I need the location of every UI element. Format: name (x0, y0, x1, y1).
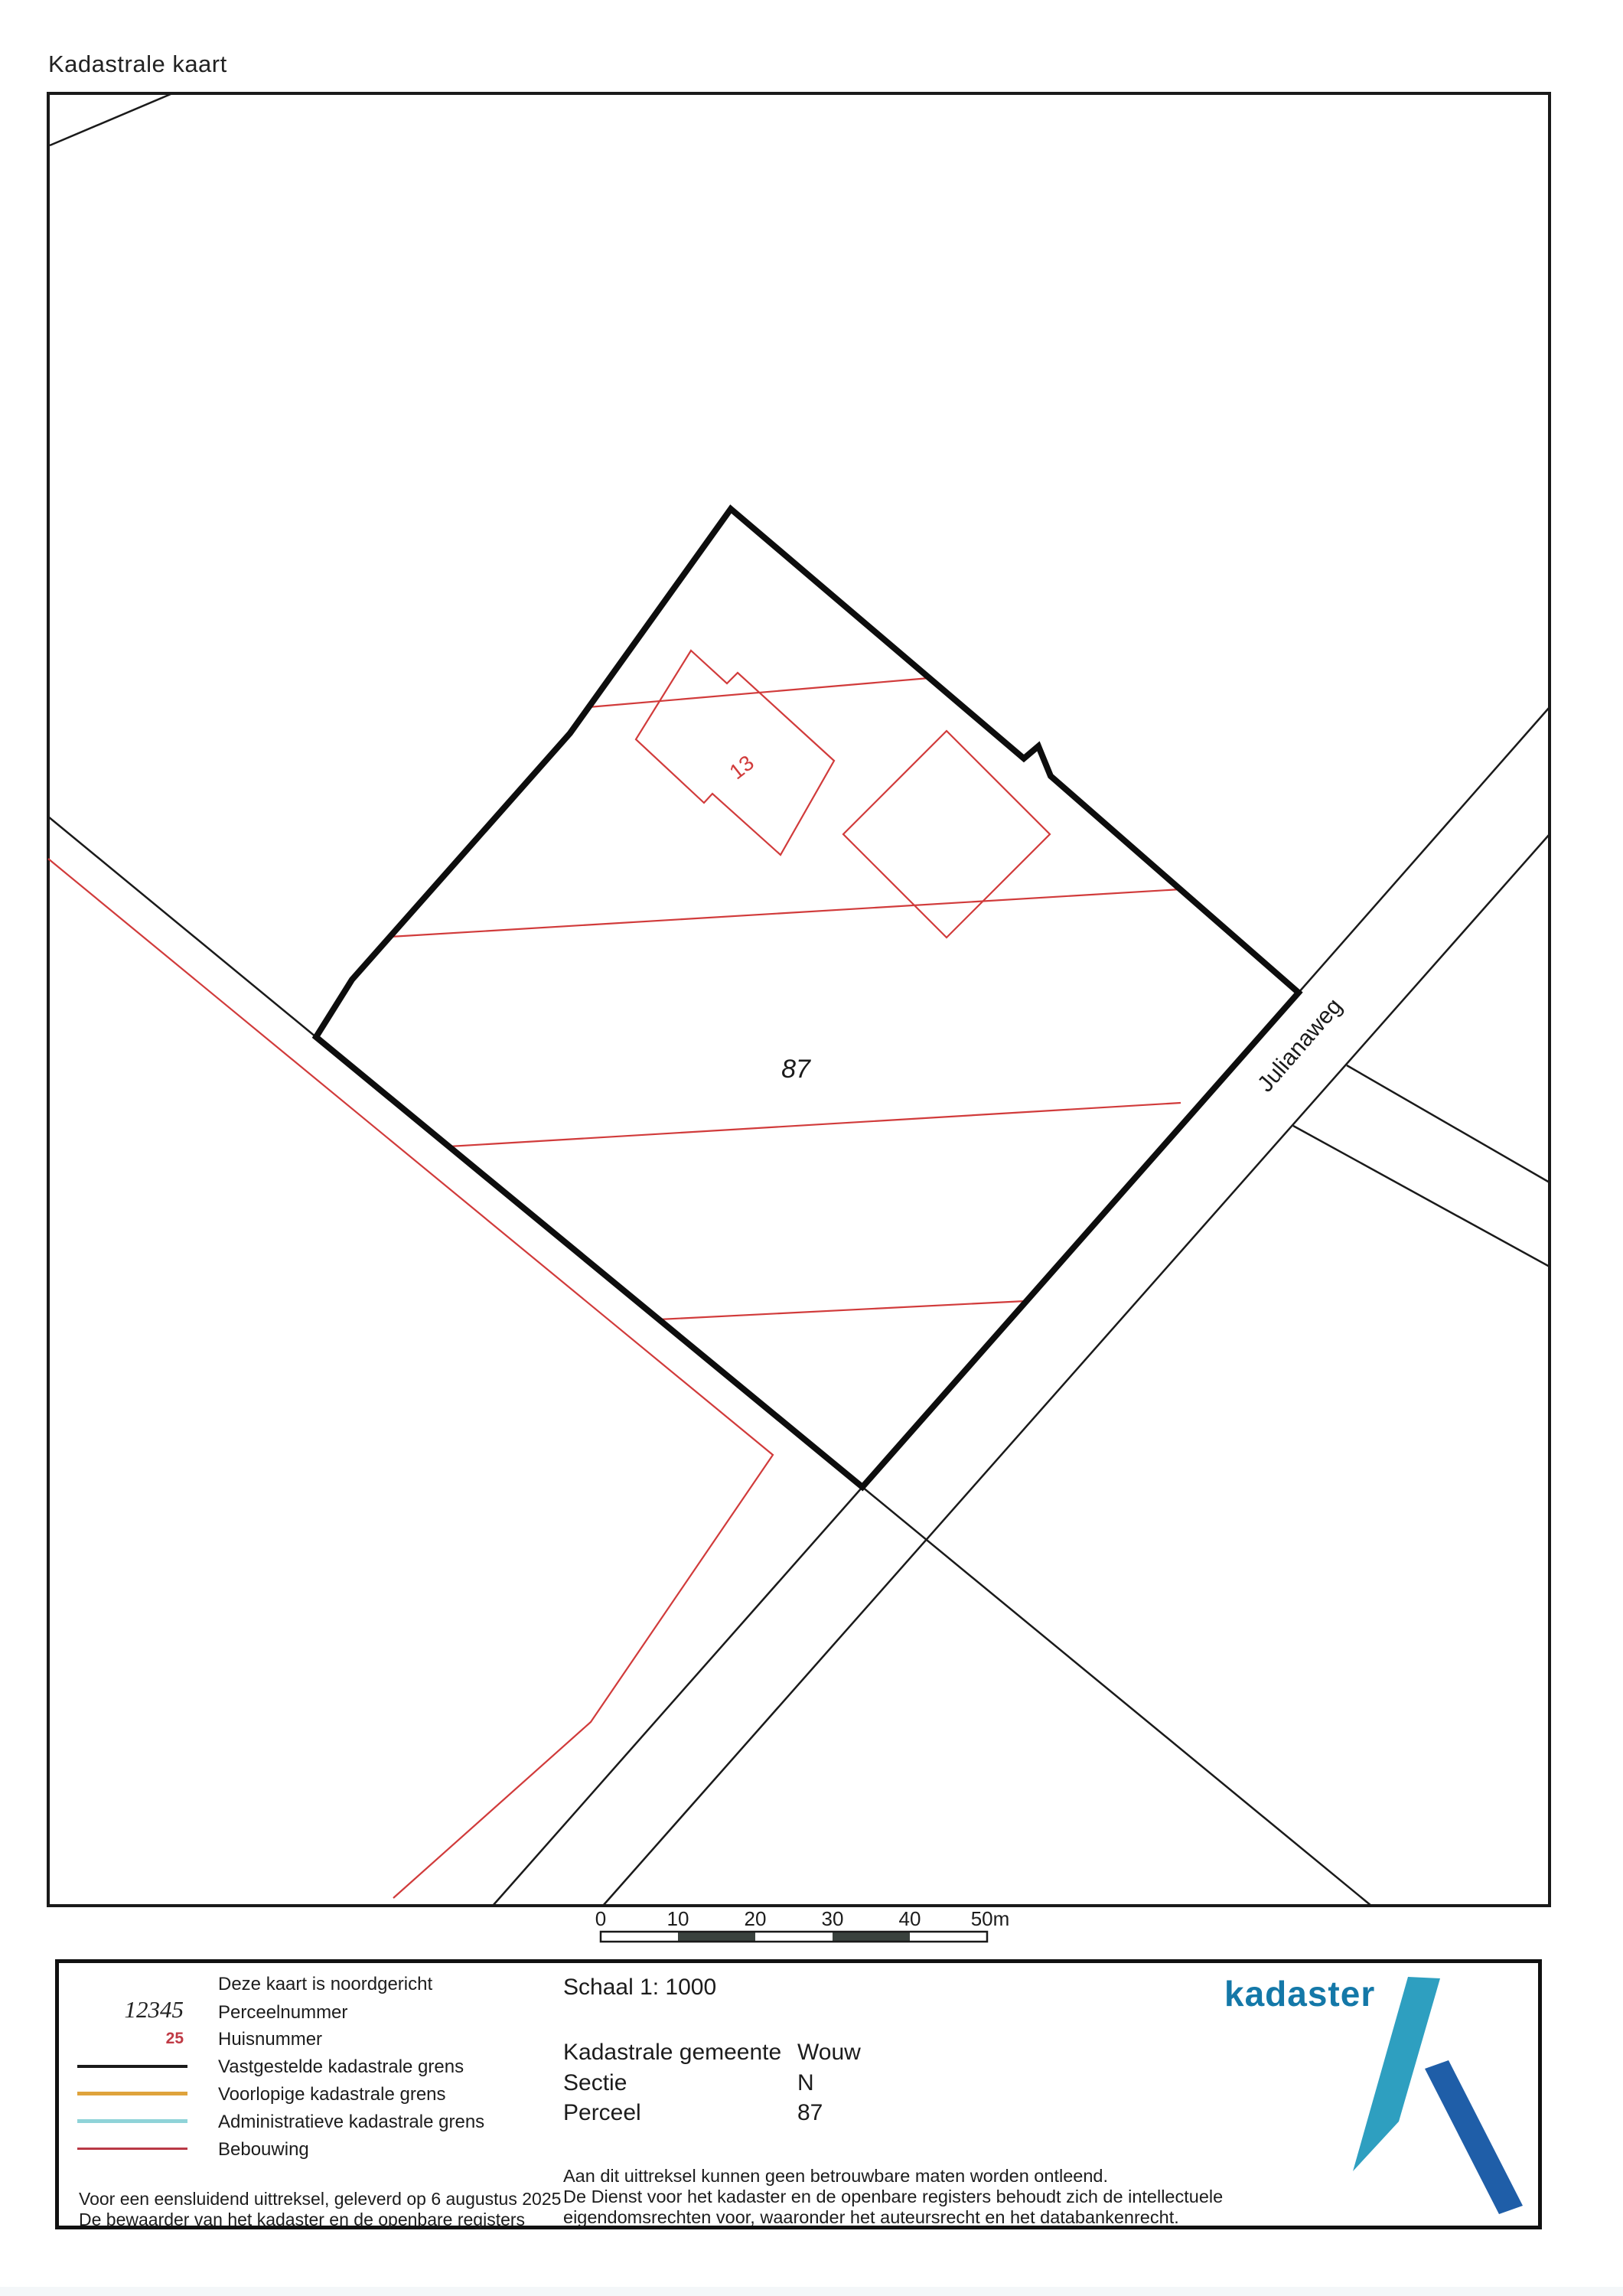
parcel-number-label: 87 (781, 1055, 811, 1084)
disclaimer-line-2: De Dienst voor het kadaster en de openba… (563, 2187, 1223, 2207)
detail-value-perceel: 87 (797, 2100, 823, 2125)
scale-bar-frame (601, 1932, 987, 1942)
legend-label-administratieve: Administratieve kadastrale grens (218, 2112, 484, 2133)
legend-label-bebouwing: Bebouwing (218, 2139, 309, 2161)
legend-label-housenumber: Huisnummer (218, 2029, 322, 2050)
scale-bar: 0 10 20 30 40 50m (595, 1907, 1010, 1942)
detail-value-sectie: N (797, 2070, 814, 2095)
scale-tick-50: 50m (971, 1907, 1010, 1930)
scan-edge-strip (0, 2287, 1623, 2296)
north-note: Deze kaart is noordgericht (218, 1974, 432, 1995)
page: Kadastrale kaart 87 1 (0, 0, 1623, 2296)
legend-line-voorlopige (77, 2092, 187, 2095)
disclaimer-line-1: Aan dit uittreksel kunnen geen betrouwba… (563, 2166, 1108, 2187)
disclaimer-line-3: eigendomsrechten voor, waaronder het aut… (563, 2207, 1179, 2228)
legend-label-vastgestelde: Vastgestelde kadastrale grens (218, 2056, 464, 2078)
scale-bar-segment-dark-2 (833, 1932, 910, 1942)
legend-label-voorlopige: Voorlopige kadastrale grens (218, 2084, 446, 2105)
scale-tick-0: 0 (595, 1907, 606, 1930)
legend-line-bebouwing (77, 2148, 187, 2150)
issued-line-1: Voor een eensluidend uittreksel, gelever… (79, 2189, 561, 2210)
detail-row-gemeente: Kadastrale gemeenteWouw (563, 2040, 861, 2066)
cadastral-map: 87 13 Julianaweg 0 10 20 30 40 50m (0, 0, 1623, 2296)
issued-line-2: De bewaarder van het kadaster en de open… (79, 2210, 525, 2230)
detail-label-perceel: Perceel (563, 2100, 797, 2126)
legend-line-administratieve (77, 2119, 187, 2123)
detail-row-perceel: Perceel87 (563, 2100, 823, 2126)
detail-value-gemeente: Wouw (797, 2040, 861, 2065)
scale-tick-20: 20 (745, 1907, 767, 1930)
logo-stroke-light (1353, 1977, 1440, 2171)
scale-text: Schaal 1: 1000 (563, 1975, 716, 2001)
kadaster-logo-mark (1331, 1967, 1561, 2227)
logo-stroke-dark (1425, 2060, 1523, 2214)
legend-symbol-parcelnumber: 12345 (77, 1996, 184, 2024)
legend-symbol-housenumber: 25 (77, 2030, 184, 2048)
detail-row-sectie: SectieN (563, 2070, 814, 2096)
scale-tick-30: 30 (822, 1907, 844, 1930)
scale-tick-40: 40 (899, 1907, 921, 1930)
scale-tick-10: 10 (667, 1907, 689, 1930)
legend-line-vastgestelde (77, 2065, 187, 2068)
detail-label-sectie: Sectie (563, 2070, 797, 2096)
scale-bar-segment-dark-1 (678, 1932, 755, 1942)
legend-label-parcelnumber: Perceelnummer (218, 2002, 347, 2024)
detail-label-gemeente: Kadastrale gemeente (563, 2040, 797, 2066)
